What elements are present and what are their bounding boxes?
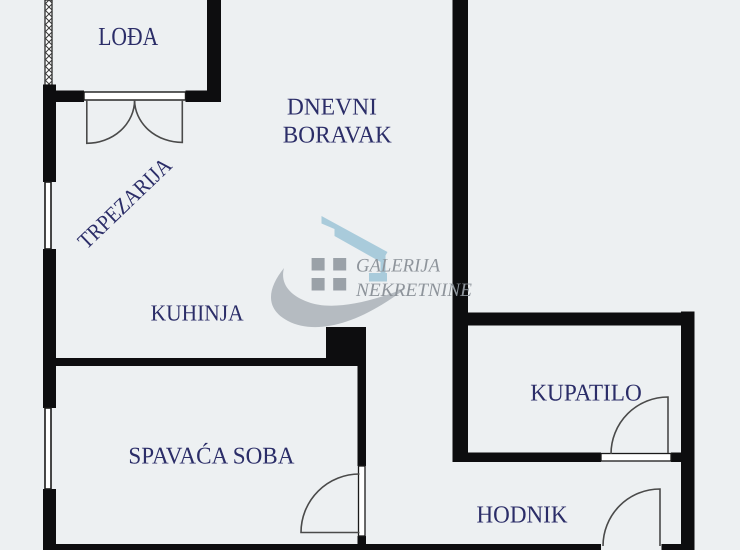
svg-text:KUHINJA: KUHINJA: [151, 300, 244, 325]
svg-text:NEKRETNINE: NEKRETNINE: [355, 280, 472, 301]
svg-text:BORAVAK: BORAVAK: [283, 123, 393, 149]
svg-text:GALERIJA: GALERIJA: [356, 256, 440, 277]
svg-text:SPAVAĆA SOBA: SPAVAĆA SOBA: [128, 442, 295, 469]
svg-text:KUPATILO: KUPATILO: [530, 380, 642, 406]
svg-text:DNEVNI: DNEVNI: [287, 95, 377, 121]
svg-text:HODNIK: HODNIK: [477, 502, 568, 529]
svg-text:LOĐA: LOĐA: [98, 22, 158, 51]
